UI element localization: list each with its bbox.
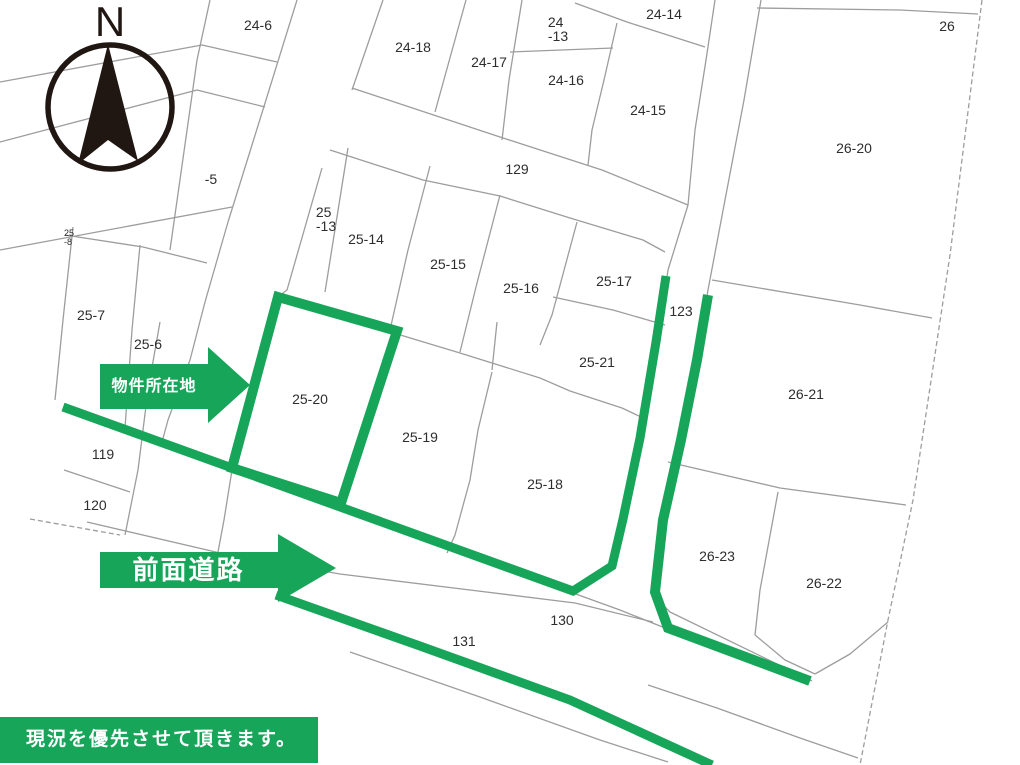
parcel-label: 131 xyxy=(452,634,475,648)
parcel-label: 25-7 xyxy=(77,308,105,322)
parcel-label: 24-16 xyxy=(548,73,584,87)
parcel-label: 24-6 xyxy=(244,18,272,32)
parcel-label: 24-14 xyxy=(646,7,682,21)
parcel-label: 130 xyxy=(550,613,573,627)
parcel-label: 25-18 xyxy=(527,477,563,491)
compass xyxy=(48,44,172,169)
property-location-label: 物件所在地 xyxy=(100,364,208,409)
parcel-label: 120 xyxy=(83,498,106,512)
parcel-label: 25-21 xyxy=(579,355,615,369)
green-highlights xyxy=(63,276,810,765)
parcel-label: 24-15 xyxy=(630,103,666,117)
parcel-label: 25-17 xyxy=(596,274,632,288)
road-highlight-right xyxy=(655,295,810,681)
front-road-label: 前面道路 xyxy=(100,552,277,588)
parcel-label: 26-22 xyxy=(806,576,842,590)
parcel-label: 24-17 xyxy=(471,55,507,69)
parcel-label: 119 xyxy=(92,447,114,461)
parcel-label: 25 -8 xyxy=(64,229,74,247)
north-arrow-icon xyxy=(78,44,138,164)
parcel-label: 25 -13 xyxy=(316,205,336,233)
parcel-label: 25-6 xyxy=(134,337,162,351)
parcel-label: 24 -13 xyxy=(548,15,568,43)
parcel-label: 25-20 xyxy=(292,392,328,406)
parcel-label: 26-20 xyxy=(836,141,872,155)
parcel-label: 26-23 xyxy=(699,549,735,563)
parcel-label: -5 xyxy=(205,172,217,186)
cadastral-map: N 24-624-1424 -1324-1824-1724-1624-15261… xyxy=(0,0,1020,765)
parcel-label: 25-15 xyxy=(430,257,466,271)
parcel-label: 26-21 xyxy=(788,387,824,401)
parcel-label: 129 xyxy=(505,162,528,176)
note-box: 現況を優先させて頂きます。 xyxy=(0,717,318,763)
parcel-label: 24-18 xyxy=(395,40,431,54)
parcel-label: 26 xyxy=(939,19,955,33)
compass-north-letter: N xyxy=(88,0,132,44)
parcel-label: 25-16 xyxy=(503,281,539,295)
parcel-label: 123 xyxy=(669,304,692,318)
parcel-label: 25-14 xyxy=(348,232,384,246)
parcel-label: 25-19 xyxy=(402,430,438,444)
